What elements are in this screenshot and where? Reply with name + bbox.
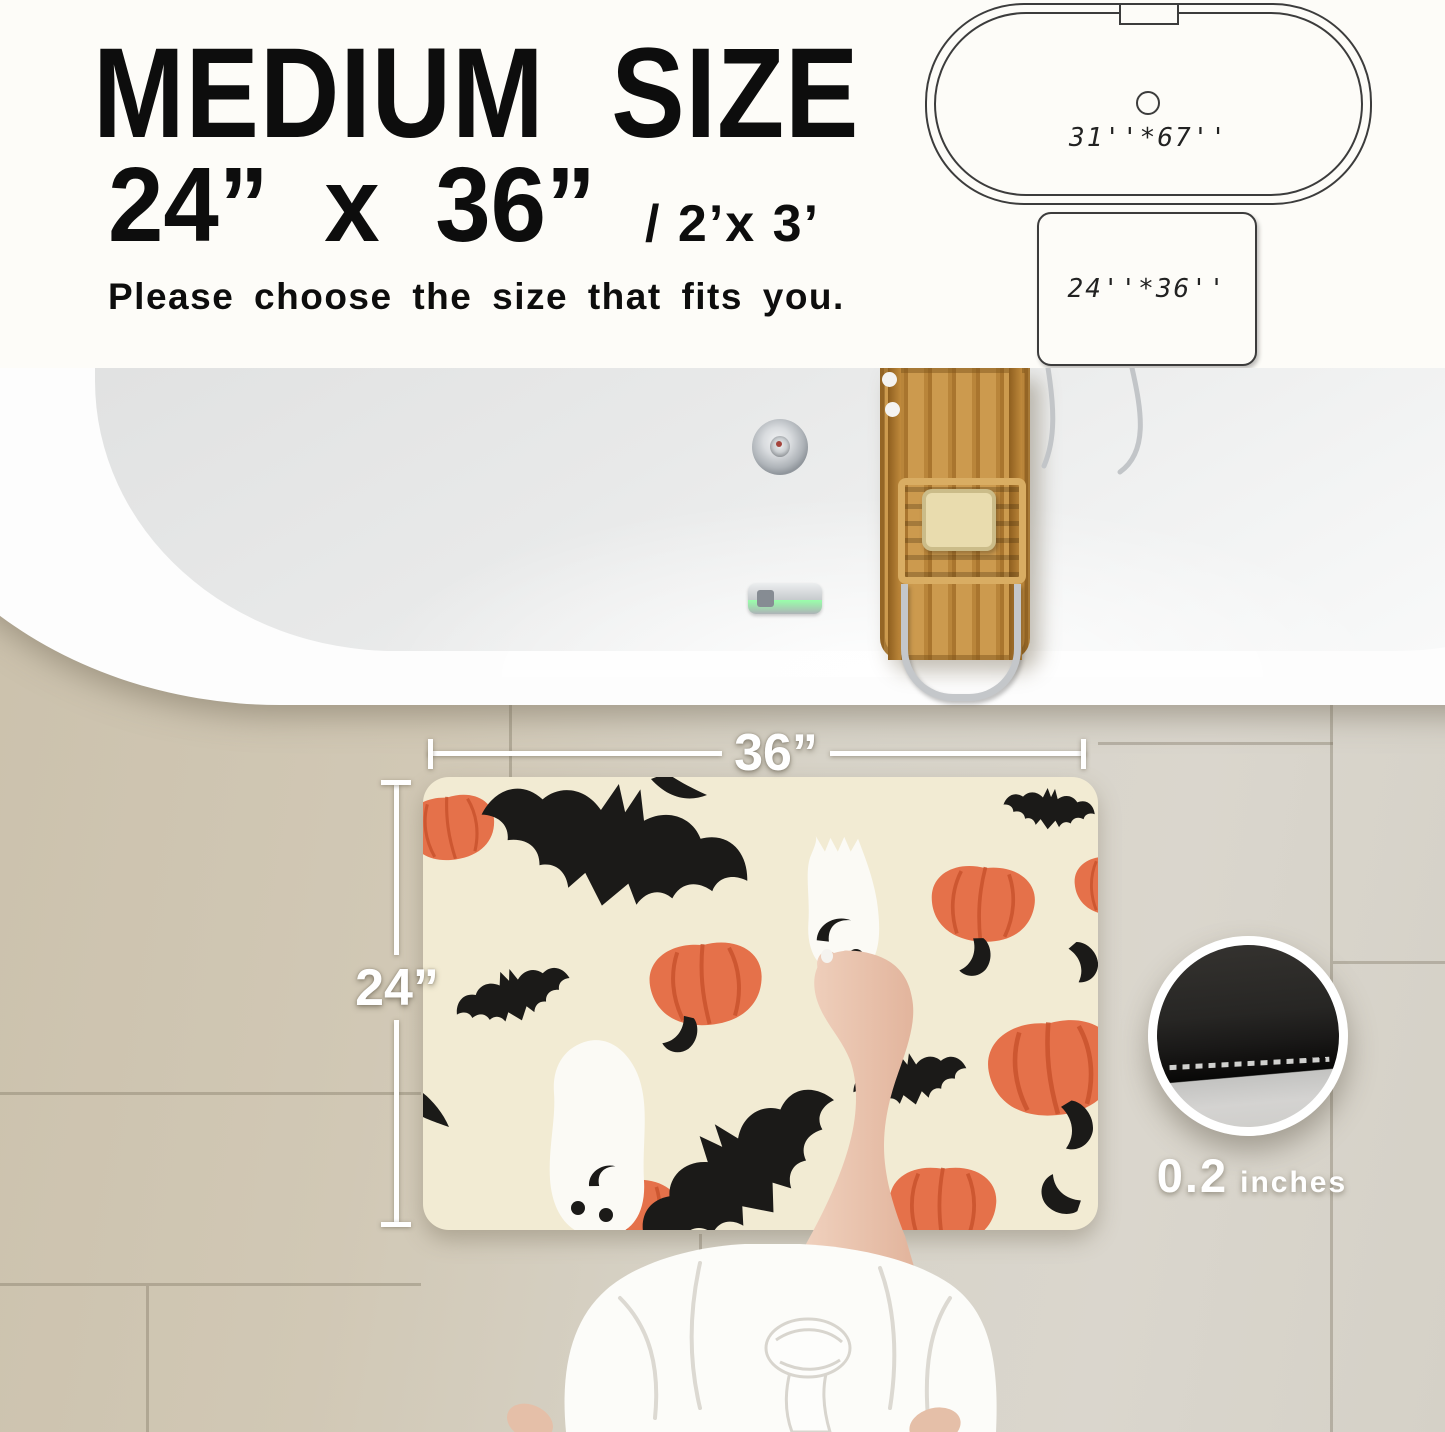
bat-icon (848, 1042, 972, 1116)
bamboo-bath-caddy (880, 368, 1030, 660)
bathtub-drain (752, 419, 808, 475)
mat-pattern (423, 777, 1098, 1230)
tile-grout-line (1333, 961, 1445, 964)
tile-grout-line (509, 700, 512, 778)
drain-indicator-dot (776, 441, 782, 447)
thickness-unit: inches (1240, 1166, 1347, 1199)
pumpkin-icon (1075, 857, 1098, 916)
size-feet: / 2’x 3’ (645, 195, 820, 253)
tile-grout-line (699, 1234, 702, 1432)
product-size-infographic: MEDIUM SIZE 24” x 36”/ 2’x 3’ Please cho… (0, 0, 1445, 1432)
bat-wing-tip-icon (423, 1093, 449, 1127)
bathtub-outline-diagram: 31''*67'' (925, 3, 1372, 205)
overflow-plate (748, 583, 822, 614)
drain-hole-icon (1136, 91, 1160, 115)
tile-grout-line (0, 1092, 421, 1095)
left-hand (501, 1397, 559, 1432)
bat-icon (449, 952, 578, 1039)
bathroom-photo: 36” 24” 0.2inches (0, 368, 1445, 1432)
mat-outline-diagram: 24''*36'' (1037, 212, 1257, 366)
thickness-label: 0.2inches (1117, 1148, 1387, 1203)
bat-icon (467, 777, 762, 938)
halloween-bath-mat (423, 777, 1098, 1230)
height-dimension-line (394, 783, 399, 955)
caddy-chrome-handle (901, 584, 1021, 701)
width-dimension-cap (1081, 739, 1086, 769)
height-dimension-line (394, 1020, 399, 1224)
size-inches: 24” x 36” (108, 152, 596, 258)
pumpkin-icon (929, 863, 1037, 945)
pumpkin-icon (423, 791, 499, 866)
thickness-closeup-inset (1143, 931, 1353, 1141)
robe-folds (620, 1263, 950, 1418)
tile-grout-line (1098, 742, 1333, 745)
bat-wing-tip-icon (651, 777, 707, 798)
height-dimension-cap (381, 780, 411, 785)
tile-grout-line (146, 1286, 149, 1432)
width-dimension-label: 36” (734, 723, 818, 783)
glass-slot-hole (882, 372, 897, 387)
faucet-notch-icon (1119, 3, 1179, 25)
mat-size-label: 24''*36'' (1039, 274, 1255, 304)
soap-bar (922, 489, 996, 551)
size-dimensions: 24” x 36”/ 2’x 3’ (108, 152, 820, 258)
bathrobe (501, 1244, 996, 1432)
robe-belt-knot (766, 1319, 850, 1432)
bathtub-size-label: 31''*67'' (927, 123, 1370, 153)
width-dimension-line (428, 751, 722, 756)
mat-edge-stitching (1169, 1057, 1329, 1070)
pumpkin-icon (890, 1168, 997, 1230)
pumpkin-stem-icon (1061, 937, 1098, 985)
ghost-icon (550, 1040, 645, 1230)
width-dimension-line (830, 751, 1086, 756)
overflow-core (757, 590, 774, 607)
height-dimension-label: 24” (355, 958, 439, 1018)
size-title: MEDIUM SIZE (93, 30, 859, 158)
thickness-value: 0.2 (1157, 1149, 1228, 1202)
glass-slot-hole (885, 402, 900, 417)
tile-grout-line (0, 1283, 421, 1286)
ghost-icon (808, 836, 879, 974)
height-dimension-cap (381, 1222, 411, 1227)
bathtub (0, 368, 1445, 705)
pumpkin-icon (647, 939, 766, 1030)
bat-icon (1001, 784, 1097, 834)
width-dimension-cap (428, 739, 433, 769)
right-hand (905, 1402, 964, 1432)
size-note: Please choose the size that fits you. (108, 276, 845, 318)
pumpkin-stem-icon (1034, 1172, 1087, 1221)
